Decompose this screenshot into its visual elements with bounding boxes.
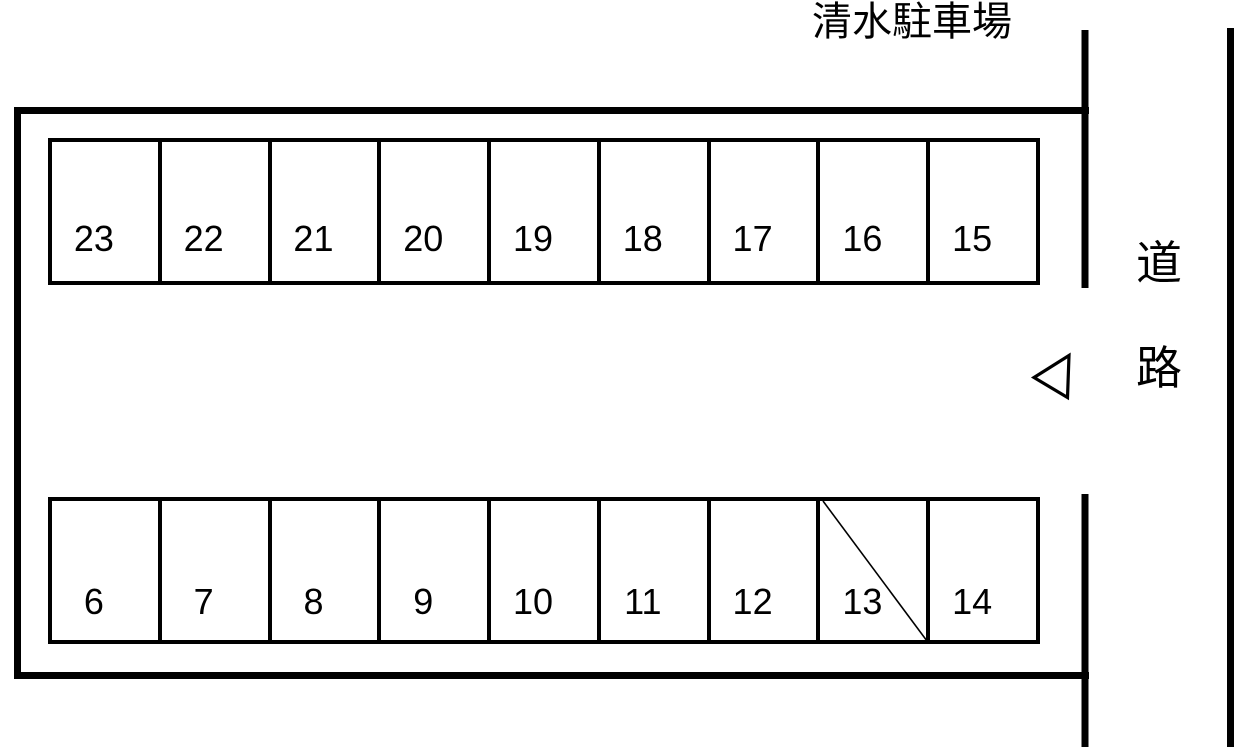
space-number: 16 [809,221,915,257]
space-number: 21 [261,221,367,257]
parking-space: 18 [597,138,711,285]
space-number: 11 [590,584,696,620]
space-number: 7 [151,584,257,620]
parking-space: 9 [377,497,491,644]
parking-space: 6 [48,497,162,644]
space-number: 15 [919,221,1025,257]
space-number: 9 [370,584,476,620]
space-number: 6 [41,584,147,620]
parking-row-bottom: 6 7 8 9 10 11 12 13 14 [48,497,1040,644]
parking-space: 12 [707,497,821,644]
space-number: 17 [700,221,806,257]
parking-space: 15 [926,138,1040,285]
parking-space: 22 [158,138,272,285]
space-number: 14 [919,584,1025,620]
parking-space: 17 [707,138,821,285]
space-number: 18 [590,221,696,257]
parking-space: 8 [268,497,382,644]
parking-space: 21 [268,138,382,285]
parking-space: 20 [377,138,491,285]
space-number: 13 [809,584,915,620]
road-label-top-char: 道 [1133,240,1185,286]
parking-row-top: 23 22 21 20 19 18 17 16 15 [48,138,1040,285]
parking-space: 23 [48,138,162,285]
parking-space: 19 [487,138,601,285]
entrance-arrow-icon [1034,356,1069,398]
space-number: 19 [480,221,586,257]
parking-space: 10 [487,497,601,644]
parking-space: 16 [816,138,930,285]
space-number: 12 [700,584,806,620]
space-number: 22 [151,221,257,257]
road-label-bottom-char: 路 [1133,345,1185,391]
parking-space-crossed: 13 [816,497,930,644]
space-number: 8 [261,584,367,620]
space-number: 23 [41,221,147,257]
parking-space: 7 [158,497,272,644]
space-number: 10 [480,584,586,620]
parking-lot-diagram: 清水駐車場 道 路 23 22 21 20 19 18 17 16 15 6 7… [0,0,1242,747]
parking-space: 14 [926,497,1040,644]
space-number: 20 [370,221,476,257]
parking-space: 11 [597,497,711,644]
parking-lot-title: 清水駐車場 [812,2,1012,42]
